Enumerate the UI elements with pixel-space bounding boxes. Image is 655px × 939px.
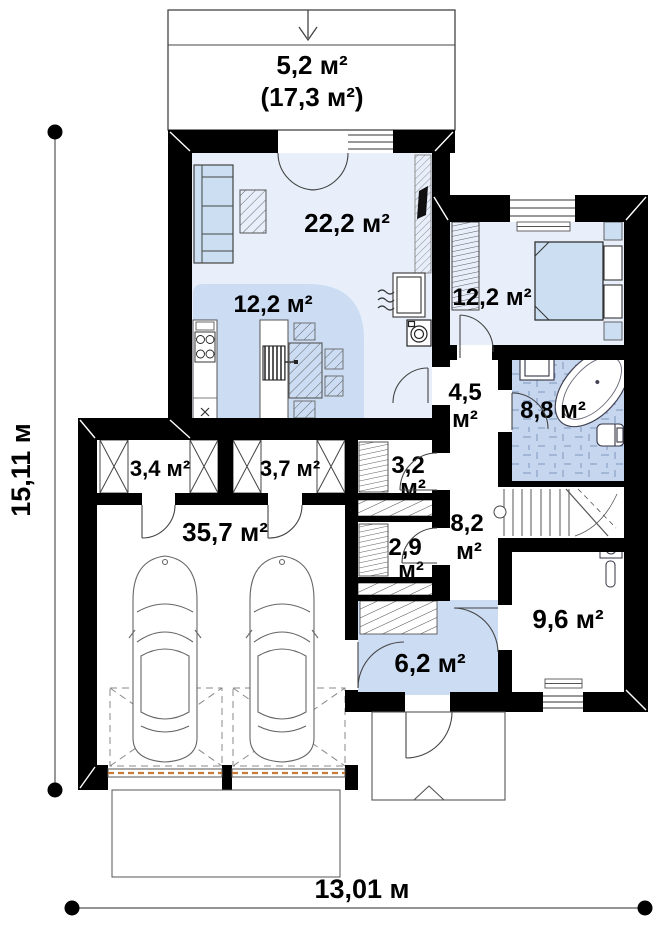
bedroom-area-label: 12,2 м² xyxy=(452,284,531,311)
closet-column: 3,2 м² 2,9 м² xyxy=(358,442,437,634)
window xyxy=(543,694,583,710)
car-icon xyxy=(129,556,201,762)
wardrobe-icon xyxy=(359,442,388,492)
car-icon xyxy=(246,556,318,762)
shelf-icon xyxy=(358,500,437,516)
floor-plan-canvas: 5,2 м² (17,3 м²) 35,7 м² xyxy=(0,0,655,939)
coffee-table-icon xyxy=(240,190,266,233)
hall-unit-label: м² xyxy=(452,406,478,433)
arrow-up-icon xyxy=(414,786,444,800)
boiler-icon xyxy=(407,320,431,346)
hall2-area-label: 8,2 xyxy=(450,510,483,537)
chair-icon xyxy=(325,376,343,396)
dimension-dot xyxy=(638,901,653,916)
bathroom-area-label: 8,8 м² xyxy=(520,397,586,424)
chair-icon xyxy=(325,349,343,369)
height-dimension-label: 15,11 м xyxy=(6,423,36,517)
stairs-icon xyxy=(494,489,617,536)
wardrobe-icon xyxy=(359,524,388,576)
width-dimension-label: 13,01 м xyxy=(314,874,409,904)
shelf-icon xyxy=(358,583,437,595)
storage2-area-label: 3,7 м² xyxy=(260,456,320,481)
garage-apron xyxy=(112,790,340,877)
storage1-door xyxy=(142,505,175,538)
cabinet-room: 9,6 м² xyxy=(532,540,622,688)
dimension-dot xyxy=(65,901,80,916)
horizontal-dimension: 13,01 м xyxy=(65,874,653,916)
window xyxy=(510,198,575,219)
garage: 35,7 м² xyxy=(110,517,345,766)
terrace-area-label: 5,2 м² xyxy=(276,50,348,80)
sofa-icon xyxy=(194,165,233,263)
radiator-icon xyxy=(517,222,570,231)
chair-icon xyxy=(294,401,315,418)
toilet-icon xyxy=(597,424,624,446)
storage2-door xyxy=(268,505,302,538)
window xyxy=(348,134,393,150)
entrance-door xyxy=(406,712,452,758)
chair-icon xyxy=(294,323,315,340)
entry-area-label: 6,2 м² xyxy=(394,648,466,678)
floor-plan: 5,2 м² (17,3 м²) 35,7 м² xyxy=(0,0,655,939)
garage-area-label: 35,7 м² xyxy=(182,517,268,547)
hall-area-label: 4,5 xyxy=(448,379,481,406)
radiator-icon xyxy=(545,679,582,688)
hall2-unit-label: м² xyxy=(456,538,482,565)
cabinet-area-label: 9,6 м² xyxy=(532,604,604,634)
vertical-dimension: 15,11 м xyxy=(6,125,63,798)
living-area-label: 22,2 м² xyxy=(304,208,390,238)
storage1-area-label: 3,4 м² xyxy=(130,456,190,481)
dimension-dot xyxy=(48,783,63,798)
kitchen-area-label: 12,2 м² xyxy=(233,291,312,318)
terrace-total-label: (17,3 м²) xyxy=(260,82,363,112)
porch xyxy=(372,712,505,800)
terrace: 5,2 м² (17,3 м²) xyxy=(168,10,455,130)
dimension-dot xyxy=(48,125,63,140)
